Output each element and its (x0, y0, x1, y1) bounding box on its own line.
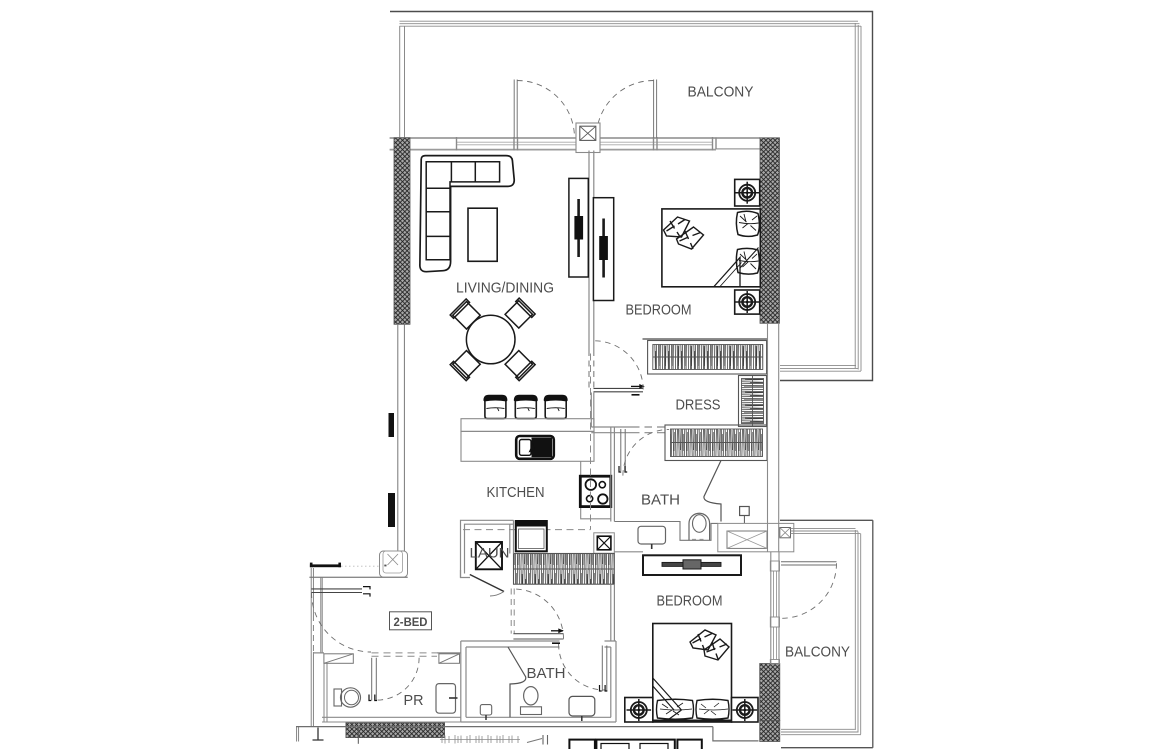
svg-text:BEDROOM: BEDROOM (657, 594, 723, 610)
svg-text:LIVING/DINING: LIVING/DINING (456, 280, 554, 297)
svg-text:BALCONY: BALCONY (785, 645, 850, 661)
svg-text:BATH: BATH (527, 666, 566, 682)
svg-text:DRESS: DRESS (676, 398, 721, 414)
svg-text:BALCONY: BALCONY (688, 85, 754, 101)
svg-text:BEDROOM: BEDROOM (626, 303, 692, 319)
svg-text:2-BED: 2-BED (394, 615, 428, 629)
svg-text:LAUN: LAUN (470, 546, 510, 561)
svg-text:PR: PR (404, 693, 424, 709)
svg-text:BATH: BATH (641, 493, 680, 509)
svg-text:KITCHEN: KITCHEN (487, 485, 545, 501)
